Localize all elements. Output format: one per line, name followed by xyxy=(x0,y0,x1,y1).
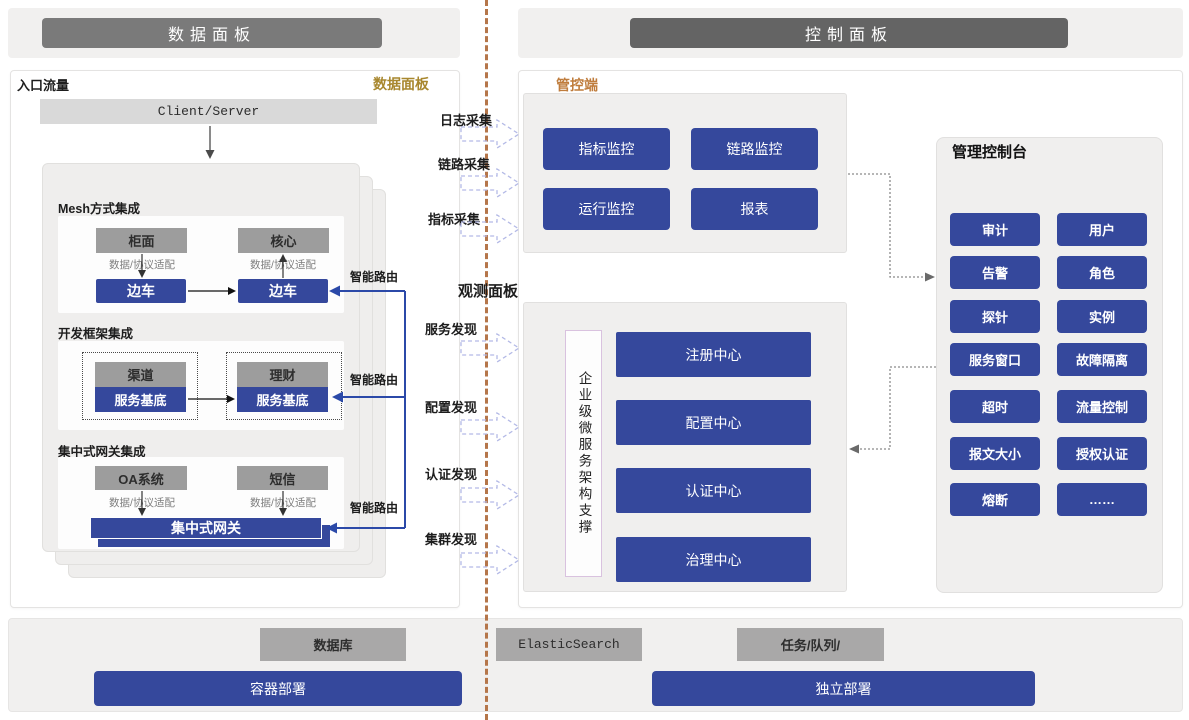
service-base-left: 服务基底 xyxy=(95,387,186,412)
client-server-box: Client/Server xyxy=(40,99,377,124)
console-button-alert: 告警 xyxy=(950,256,1040,289)
panel-divider xyxy=(485,0,488,720)
console-button-service-window: 服务窗口 xyxy=(950,343,1040,376)
infra-database: 数据库 xyxy=(260,628,406,661)
monitor-report: 报表 xyxy=(691,188,818,230)
console-button-user: 用户 xyxy=(1057,213,1147,246)
gateway-adapter-label-right: 数据/协议适配 xyxy=(238,495,328,510)
registry-center: 注册中心 xyxy=(616,332,811,377)
mesh-adapter-label-right: 数据/协议适配 xyxy=(238,257,328,272)
service-base-right: 服务基底 xyxy=(237,387,328,412)
flow-arrow-auth-discovery xyxy=(461,481,519,509)
standalone-deploy: 独立部署 xyxy=(652,671,1035,706)
gateway-adapter-label-left: 数据/协议适配 xyxy=(97,495,187,510)
flow-arrow-trace-collect xyxy=(461,169,519,197)
infra-task-queue: 任务/队列/ xyxy=(737,628,884,661)
flow-arrow-service-discovery xyxy=(461,334,519,362)
infra-elasticsearch: ElasticSearch xyxy=(496,628,642,661)
flow-label-config-discovery: 配置发现 xyxy=(425,397,477,416)
console-button-authorization: 授权认证 xyxy=(1057,437,1147,470)
console-button-flow-control: 流量控制 xyxy=(1057,390,1147,423)
sidecar-right: 边车 xyxy=(238,279,328,303)
console-button-audit: 审计 xyxy=(950,213,1040,246)
control-end-label: 管控端 xyxy=(556,75,598,95)
gateway-app-right: 短信 xyxy=(237,466,328,490)
framework-app-left: 渠道 xyxy=(95,362,186,387)
mesh-section-title: Mesh方式集成 xyxy=(58,198,140,217)
monitor-metrics: 指标监控 xyxy=(543,128,670,170)
console-button-more: …… xyxy=(1057,483,1147,516)
flow-label-log-collect: 日志采集 xyxy=(440,110,492,129)
mesh-app-left: 柜面 xyxy=(96,228,187,253)
microservice-support-box: 企业级微服务架构支撑 xyxy=(565,330,602,577)
console-button-timeout: 超时 xyxy=(950,390,1040,423)
observe-panel-title: 观测面板 xyxy=(458,280,518,301)
flow-label-trace-collect: 链路采集 xyxy=(438,154,490,173)
sidecar-left: 边车 xyxy=(96,279,186,303)
config-center: 配置中心 xyxy=(616,400,811,445)
auth-center: 认证中心 xyxy=(616,468,811,513)
architecture-diagram: 数据面板 控制面板 入口流量 数据面板 Client/Server Mesh方式… xyxy=(0,0,1189,720)
framework-section-title: 开发框架集成 xyxy=(58,323,133,342)
console-button-probe: 探针 xyxy=(950,300,1040,333)
console-button-instance: 实例 xyxy=(1057,300,1147,333)
control-plane-header: 控制面板 xyxy=(630,18,1068,48)
console-button-fault-isolation: 故障隔离 xyxy=(1057,343,1147,376)
governance-center: 治理中心 xyxy=(616,537,811,582)
flow-arrow-config-discovery xyxy=(461,413,519,441)
gateway-app-left: OA系统 xyxy=(95,466,187,490)
console-button-role: 角色 xyxy=(1057,256,1147,289)
flow-label-cluster-discovery: 集群发现 xyxy=(425,529,477,548)
flow-arrow-cluster-discovery xyxy=(461,546,519,574)
mesh-app-right: 核心 xyxy=(238,228,329,253)
central-gateway: 集中式网关 xyxy=(90,517,322,539)
flow-block-arrows xyxy=(461,120,519,574)
monitor-trace: 链路监控 xyxy=(691,128,818,170)
container-deploy: 容器部署 xyxy=(94,671,462,706)
flow-label-auth-discovery: 认证发现 xyxy=(425,464,477,483)
smart-route-label-1: 智能路由 xyxy=(350,268,398,285)
smart-route-label-3: 智能路由 xyxy=(350,499,398,516)
flow-label-metric-collect: 指标采集 xyxy=(428,209,480,228)
data-plane-header: 数据面板 xyxy=(42,18,382,48)
management-console-title: 管理控制台 xyxy=(952,141,1027,162)
flow-label-service-discovery: 服务发现 xyxy=(425,319,477,338)
console-button-circuit-break: 熔断 xyxy=(950,483,1040,516)
framework-app-right: 理财 xyxy=(237,362,328,387)
console-button-message-size: 报文大小 xyxy=(950,437,1040,470)
entry-traffic-label: 入口流量 xyxy=(17,75,69,94)
smart-route-label-2: 智能路由 xyxy=(350,371,398,388)
mesh-adapter-label-left: 数据/协议适配 xyxy=(97,257,187,272)
data-plane-corner-label: 数据面板 xyxy=(373,74,429,94)
monitor-runtime: 运行监控 xyxy=(543,188,670,230)
